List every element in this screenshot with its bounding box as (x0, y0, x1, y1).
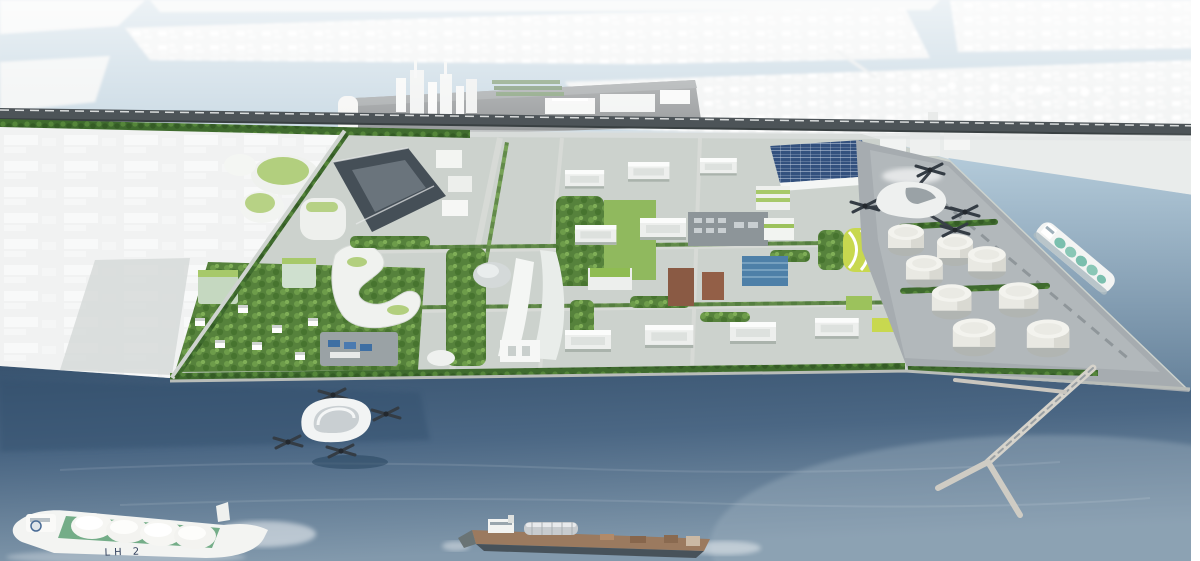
laboratory-building (700, 158, 737, 176)
laboratory-building (575, 225, 616, 245)
image-border (1191, 0, 1200, 561)
laboratory-building (815, 318, 859, 339)
evtol-shadow (312, 455, 388, 469)
lh2-ship-label: LH 2 (104, 546, 143, 558)
house (238, 305, 248, 313)
port-city-rendering: LH 2 (0, 0, 1200, 561)
storage-tank (968, 246, 1006, 280)
blue-glass-building (742, 256, 788, 286)
storage-tank (906, 255, 943, 288)
storage-tank (937, 234, 973, 266)
ship-bridge (26, 514, 56, 532)
utility-facility (320, 332, 398, 366)
house (295, 352, 305, 360)
laboratory-building (645, 325, 693, 348)
laboratory-building (730, 322, 776, 344)
storage-tank (932, 284, 972, 319)
laboratory-building (565, 330, 611, 352)
storage-tank (888, 224, 924, 256)
storage-tank (953, 319, 995, 357)
house (215, 340, 225, 348)
storage-tank (999, 282, 1039, 317)
house (195, 318, 205, 326)
house (272, 325, 282, 333)
storage-tank (1027, 320, 1069, 358)
house (308, 318, 318, 326)
laboratory-building (565, 170, 604, 189)
rendering-canvas: LH 2 (0, 0, 1200, 561)
dome-building (427, 350, 455, 366)
laboratory-building (640, 218, 686, 240)
laboratory-building (628, 162, 669, 182)
brick-building (668, 268, 694, 306)
brick-building (702, 272, 724, 300)
house (252, 342, 262, 350)
